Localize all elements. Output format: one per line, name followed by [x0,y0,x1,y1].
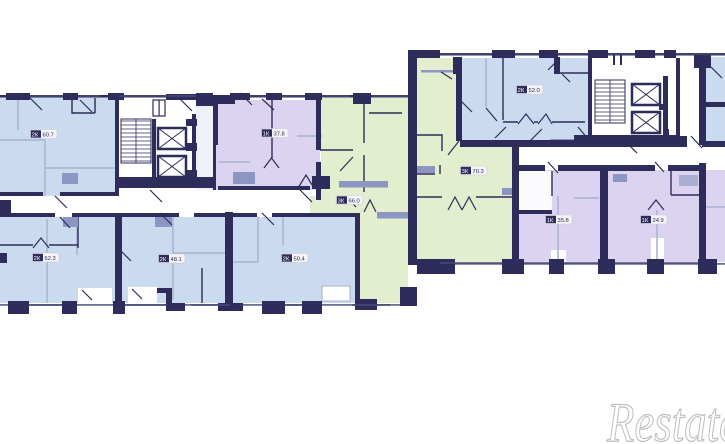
svg-text:62.3: 62.3 [45,256,56,262]
svg-text:48.1: 48.1 [171,257,182,263]
svg-text:70.3: 70.3 [473,169,484,175]
svg-text:24.9: 24.9 [653,218,664,224]
svg-text:2К: 2К [32,132,39,138]
svg-text:2К: 2К [34,256,41,262]
svg-text:35.8: 35.8 [558,218,569,224]
svg-text:1К: 1К [547,218,554,224]
svg-text:Restate: Restate [606,392,725,444]
svg-text:52.0: 52.0 [529,88,540,94]
svg-text:2К: 2К [160,257,167,263]
svg-text:1К: 1К [642,218,649,224]
svg-text:3К: 3К [462,169,469,175]
svg-text:66.0: 66.0 [349,198,360,204]
svg-text:2К: 2К [518,88,525,94]
svg-text:50.4: 50.4 [294,256,306,262]
svg-text:60.7: 60.7 [43,132,54,138]
svg-text:2К: 2К [283,256,290,262]
svg-text:1К: 1К [263,131,270,137]
svg-text:37.8: 37.8 [274,131,285,137]
svg-text:3К: 3К [338,198,345,204]
